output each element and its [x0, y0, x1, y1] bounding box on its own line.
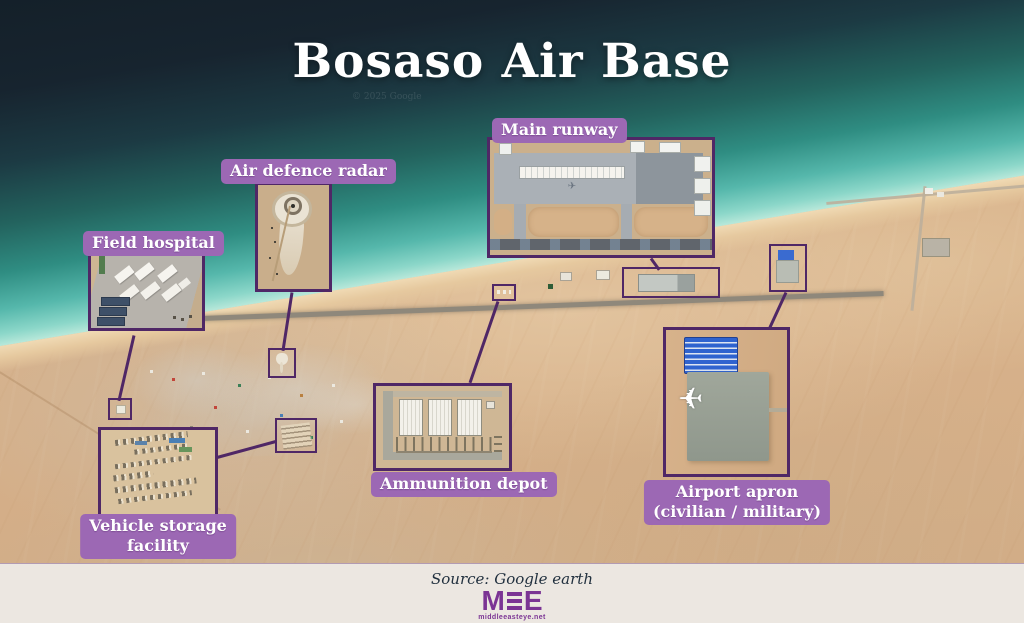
vehicle-rows-group [101, 427, 215, 517]
label-field-hospital: Field hospital [83, 231, 224, 256]
sand-island [528, 207, 619, 237]
building [659, 142, 681, 153]
berm-row [494, 434, 502, 452]
vehicle-row [115, 455, 193, 470]
label-vehicle-storage: Vehicle storage facility [80, 514, 236, 559]
label-ammunition-depot: Ammunition depot [371, 472, 557, 497]
marker-depot-sheds [497, 290, 511, 295]
storage-building [457, 399, 482, 435]
equipment-specks [173, 316, 176, 319]
berm-row [396, 437, 492, 453]
mee-logo-letter-m: M [481, 587, 504, 615]
building [694, 200, 710, 216]
hospital-tent [140, 282, 161, 301]
label-text: Ammunition depot [380, 474, 548, 494]
inset-main-runway: ✈ [487, 137, 715, 258]
compound-structures [150, 370, 153, 373]
small-building [925, 188, 933, 194]
taxiway [621, 200, 632, 239]
storage-building [428, 399, 453, 435]
site-url: middleeasteye.net [0, 614, 1024, 621]
marker-airport-apron [769, 244, 807, 292]
label-text: Field hospital [92, 233, 215, 253]
solar-panel [99, 307, 128, 316]
small-building [560, 272, 572, 281]
footer: Source: Google earth M E middleeasteye.n… [0, 563, 1024, 623]
inset-field-hospital [88, 248, 205, 331]
blue-container-cluster [169, 438, 185, 443]
label-text: Main runway [501, 120, 618, 140]
hospital-tent [115, 265, 136, 284]
radar-site-specks [271, 227, 273, 229]
building [499, 143, 512, 154]
walled-compound [922, 238, 950, 257]
building [694, 178, 710, 194]
page-title: Bosaso Air Base [0, 34, 1024, 89]
small-shed [486, 401, 495, 410]
perimeter-road [383, 452, 503, 460]
marker-vehicle-rows [280, 422, 312, 449]
storage-building [399, 399, 424, 435]
runway-pavement [490, 239, 712, 251]
small-building [596, 270, 610, 280]
marker-ammunition-depot [492, 284, 516, 301]
inset-ammunition-depot [373, 383, 512, 471]
taxiway [514, 200, 525, 239]
marker-apron-building [776, 260, 799, 283]
vehicle-row [113, 471, 153, 481]
building [694, 156, 710, 172]
label-text: Airport apron [653, 482, 821, 502]
inset-vehicle-storage [98, 427, 218, 518]
infographic: ✈ [0, 0, 1024, 623]
airplane-icon: ✈ [678, 382, 703, 417]
label-air-defence-radar: Air defence radar [221, 159, 396, 184]
marker-field-hospital [108, 398, 132, 420]
marker-blue-roof [778, 250, 794, 260]
hospital-tent [135, 262, 156, 281]
blue-container-cluster [135, 441, 146, 445]
inset-airport-apron: ✈ [663, 327, 790, 477]
mee-logo: M E [0, 589, 1024, 613]
green-container-cluster [179, 447, 193, 452]
label-text: facility [89, 536, 227, 556]
inset-air-defence-radar [255, 182, 332, 292]
mee-logo-letter-e: E [524, 587, 543, 615]
taxiway-stub [769, 408, 787, 412]
label-text: Vehicle storage [89, 516, 227, 536]
mee-logo-bars-icon [507, 592, 522, 611]
label-airport-apron: Airport apron (civilian / military) [644, 480, 830, 525]
marker-building [116, 405, 126, 414]
marker-vehicle-storage [275, 418, 317, 453]
hospital-tent [157, 264, 178, 283]
imagery-watermark: © 2025 Google [352, 92, 422, 102]
label-text: Air defence radar [230, 161, 387, 181]
building [630, 141, 645, 153]
small-dark-structure [548, 284, 553, 289]
source-credit: Source: Google earth [0, 570, 1024, 588]
perimeter-road [393, 391, 502, 398]
airplane-icon: ✈ [568, 181, 576, 192]
marker-hangar-building [638, 274, 695, 292]
small-building [937, 192, 944, 197]
marker-main-runway [622, 267, 720, 298]
solar-panel [101, 297, 130, 306]
marker-air-defence-radar [268, 348, 296, 378]
blue-roof-hangar [684, 337, 738, 374]
perimeter-road [383, 391, 394, 458]
label-text: (civilian / military) [653, 502, 821, 522]
sand-island [494, 209, 512, 235]
vehicle-row [118, 490, 192, 504]
hangar-row [519, 166, 625, 178]
solar-panel [97, 317, 126, 326]
label-main-runway: Main runway [492, 118, 627, 143]
vegetation-strip [99, 256, 106, 274]
